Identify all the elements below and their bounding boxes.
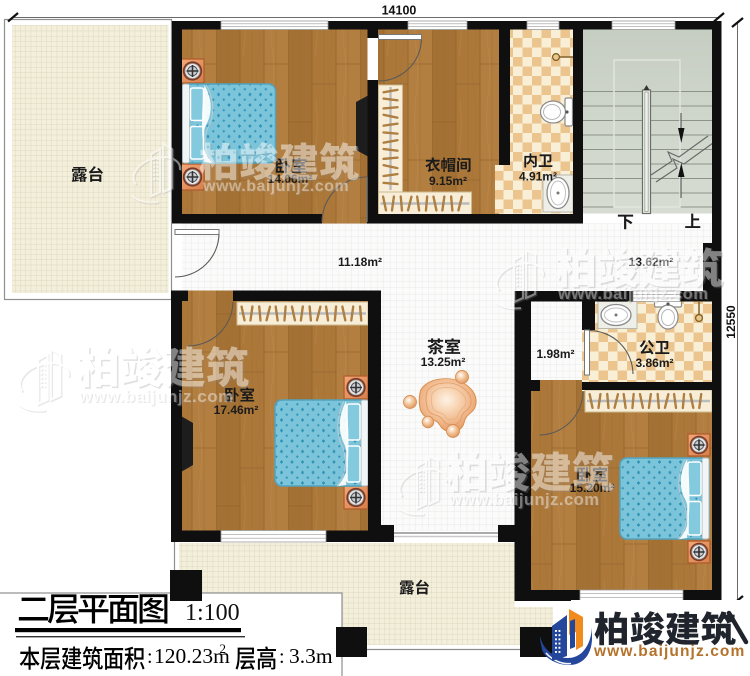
svg-text:www.baijunjz.com: www.baijunjz.com bbox=[202, 178, 349, 195]
svg-text::: : bbox=[147, 646, 153, 668]
svg-text:3.86m²: 3.86m² bbox=[635, 356, 673, 370]
svg-text::: : bbox=[279, 646, 285, 668]
svg-text:3.3m: 3.3m bbox=[289, 644, 333, 668]
svg-text:www.baijunjz.com: www.baijunjz.com bbox=[593, 643, 745, 660]
svg-text:11.18m²: 11.18m² bbox=[338, 255, 382, 269]
svg-text:1:100: 1:100 bbox=[185, 600, 240, 626]
svg-text:9.15m²: 9.15m² bbox=[429, 174, 467, 188]
svg-text:www.baijunjz.com: www.baijunjz.com bbox=[448, 491, 599, 509]
svg-text:www.baijunjz.com: www.baijunjz.com bbox=[557, 285, 708, 303]
svg-text:12550: 12550 bbox=[724, 305, 738, 339]
svg-text:www.baijunjz.com: www.baijunjz.com bbox=[78, 387, 234, 406]
svg-text:14100: 14100 bbox=[382, 4, 417, 18]
svg-text:4.91m²: 4.91m² bbox=[519, 170, 557, 184]
svg-text:13.25m²: 13.25m² bbox=[421, 355, 466, 369]
svg-text:1.98m²: 1.98m² bbox=[536, 347, 574, 361]
svg-text:2: 2 bbox=[220, 641, 227, 656]
